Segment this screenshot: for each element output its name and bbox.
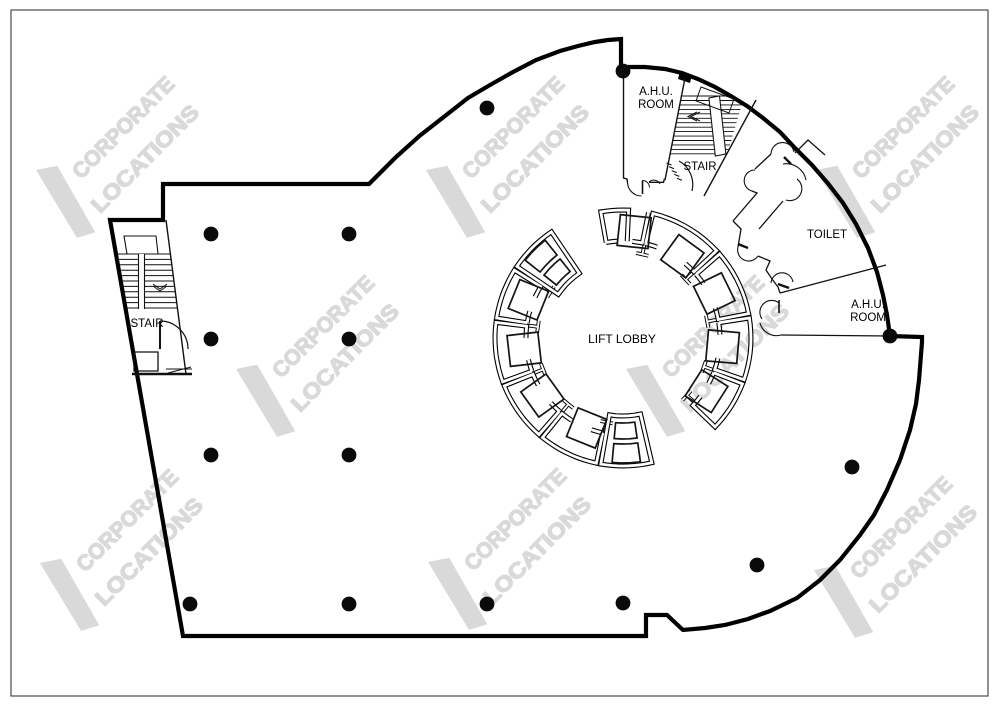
svg-text:LIFT LOBBY: LIFT LOBBY	[588, 332, 656, 346]
svg-text:STAIR: STAIR	[130, 318, 163, 330]
svg-text:STAIR: STAIR	[683, 161, 716, 173]
svg-text:A.H.U.: A.H.U.	[851, 299, 885, 311]
svg-text:A.H.U.: A.H.U.	[639, 86, 673, 98]
svg-text:ROOM: ROOM	[850, 312, 886, 324]
svg-text:TOILET: TOILET	[807, 229, 847, 241]
svg-text:ROOM: ROOM	[638, 99, 674, 111]
